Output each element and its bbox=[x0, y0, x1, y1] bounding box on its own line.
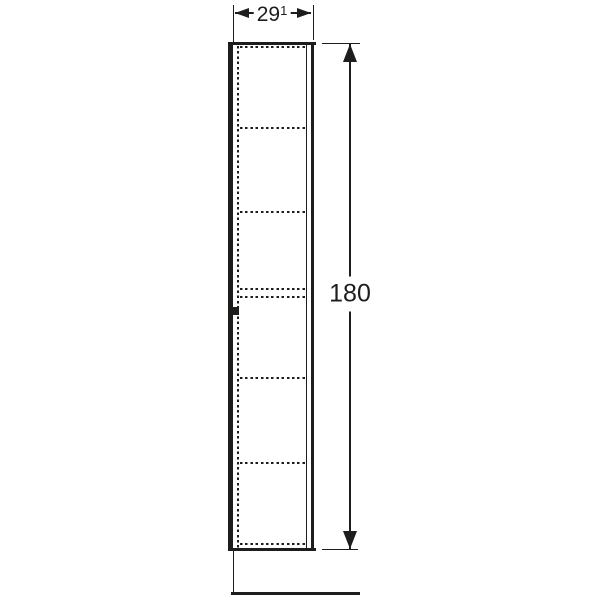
arrow-right-icon bbox=[297, 8, 311, 18]
shelf-dashed-line bbox=[240, 543, 306, 545]
shelf-dashed-line bbox=[240, 462, 306, 464]
height-dimension-label: 180 bbox=[327, 277, 373, 312]
floor-line bbox=[231, 592, 360, 595]
arrow-down-icon bbox=[343, 531, 357, 549]
cabinet-bottom-edge bbox=[228, 548, 316, 551]
shelf-dashed-line bbox=[240, 127, 306, 129]
width-dimension-label: 291 bbox=[254, 0, 291, 27]
width-extension-line-right bbox=[313, 5, 315, 40]
technical-drawing-canvas: 291 180 bbox=[0, 0, 600, 600]
shelf-dashed-line bbox=[240, 211, 306, 213]
width-value: 29 bbox=[257, 3, 280, 26]
cabinet-top-edge bbox=[228, 42, 316, 45]
shelf-dashed-line bbox=[240, 288, 306, 290]
arrow-left-icon bbox=[235, 8, 249, 18]
floor-outline-vertical-line bbox=[233, 551, 235, 593]
shelf-dashed-line bbox=[240, 377, 306, 379]
width-extension-line-left bbox=[233, 5, 235, 42]
cabinet-back-panel-outer-line bbox=[311, 42, 314, 551]
shelf-dashed-line bbox=[240, 296, 306, 298]
shelf-dashed-line bbox=[240, 46, 306, 48]
cabinet-door-inner-dashed-line bbox=[237, 46, 239, 548]
door-handle-mark bbox=[232, 307, 239, 315]
cabinet-door-front-edge bbox=[228, 42, 233, 551]
width-footnote-marker: 1 bbox=[280, 3, 287, 18]
arrow-up-icon bbox=[343, 44, 357, 62]
